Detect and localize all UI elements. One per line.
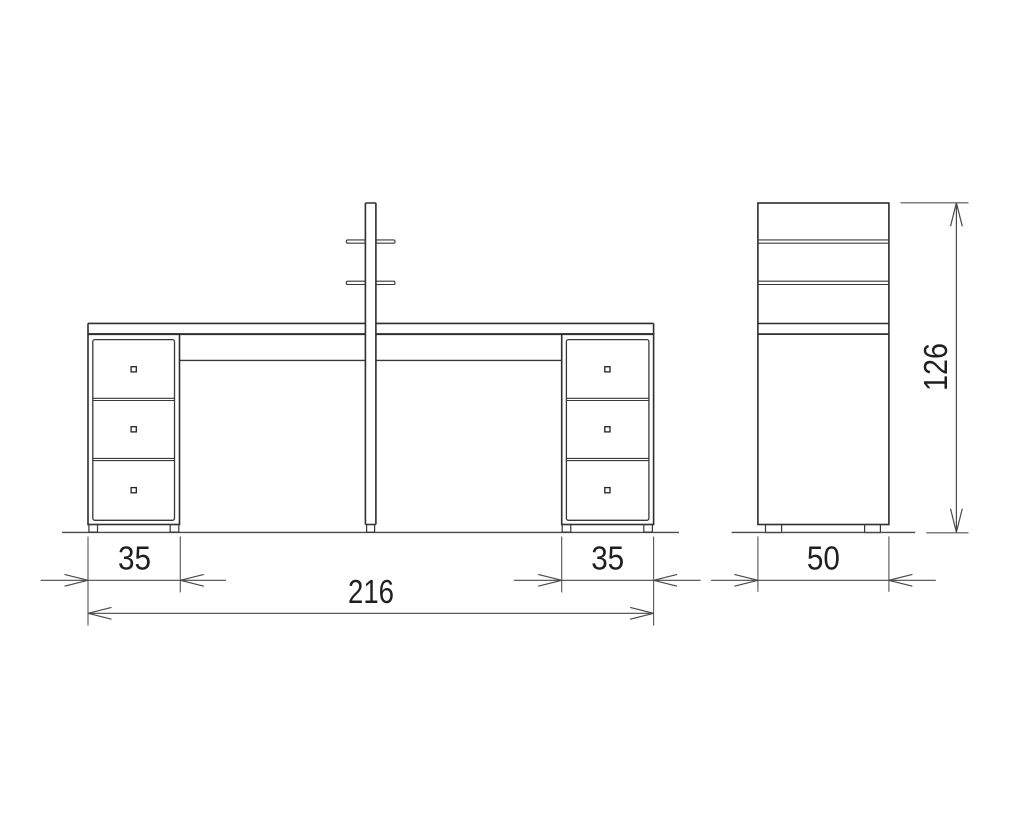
- svg-text:50: 50: [807, 540, 840, 577]
- svg-text:35: 35: [118, 540, 151, 577]
- svg-text:216: 216: [348, 573, 394, 610]
- svg-text:126: 126: [917, 343, 954, 391]
- svg-text:35: 35: [591, 540, 624, 577]
